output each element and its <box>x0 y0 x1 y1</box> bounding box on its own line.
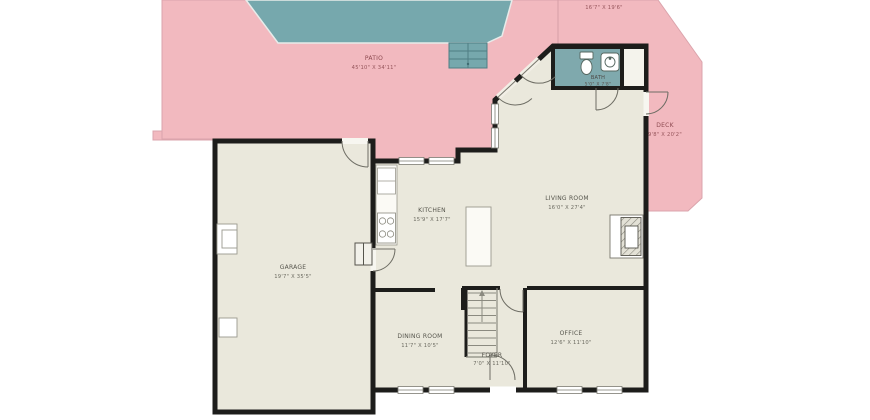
kitchen-label: KITCHEN <box>418 207 446 214</box>
fireplace <box>610 215 643 258</box>
kitchen-counter <box>376 165 397 245</box>
pool-steps <box>449 43 487 68</box>
patio-dims: 45'10" X 34'11" <box>352 65 397 71</box>
deck-label: DECK <box>656 122 674 129</box>
floor-plan: PATIO 45'10" X 34'11" 16'7" X 19'6" DECK… <box>0 0 870 420</box>
bath-closet <box>622 47 646 88</box>
kitchen-dims: 15'9" X 17'7" <box>413 217 451 223</box>
garage-closet <box>355 243 372 265</box>
kitchen-island <box>466 207 491 266</box>
garage-label: GARAGE <box>280 264 307 271</box>
foyer-label: FOYER <box>482 352 503 359</box>
living-room-label: LIVING ROOM <box>545 195 589 202</box>
toilet-icon <box>580 52 593 75</box>
office-dims: 12'6" X 11'10" <box>550 340 591 346</box>
pool <box>246 0 512 43</box>
foyer-dims: 7'0" X 11'10" <box>473 361 511 367</box>
dining-room-label: DINING ROOM <box>397 333 442 340</box>
upper-deck-dims: 16'7" X 19'6" <box>585 5 623 11</box>
living-room-dims: 16'0" X 27'4" <box>548 205 586 211</box>
bath-label: BATH <box>591 75 605 81</box>
office-label: OFFICE <box>560 330 583 337</box>
bath-dims: 5'0" X 7'8" <box>585 82 612 88</box>
stove-icon <box>378 213 396 243</box>
patio-label: PATIO <box>365 55 383 62</box>
sink-icon <box>601 53 619 71</box>
dining-room-dims: 11'7" X 10'5" <box>401 343 439 349</box>
garage-dims: 19'7" X 35'5" <box>274 274 312 280</box>
deck-dims: 9'8" X 20'2" <box>648 132 682 138</box>
